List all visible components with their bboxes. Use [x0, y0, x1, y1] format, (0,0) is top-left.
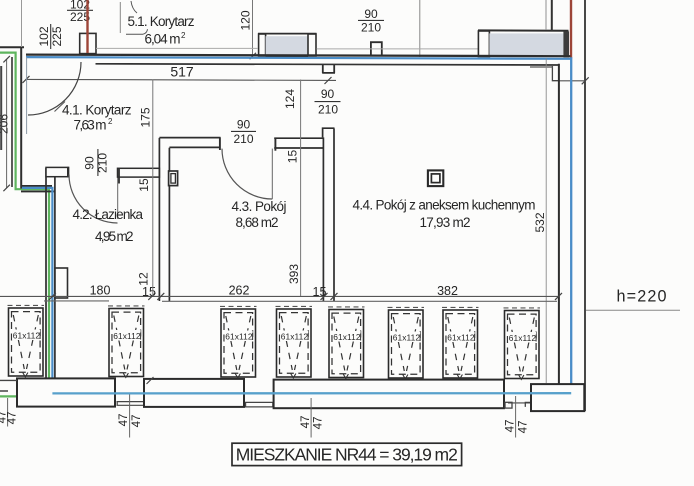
- svg-text:90: 90: [83, 156, 97, 170]
- svg-text:180: 180: [90, 284, 111, 298]
- svg-text:210: 210: [96, 153, 110, 173]
- svg-text:4.4. Pokój z aneksem kuchennym: 4.4. Pokój z aneksem kuchennym: [353, 198, 536, 213]
- svg-text:47: 47: [300, 416, 312, 429]
- svg-text:6,04 m: 6,04 m: [145, 32, 181, 47]
- svg-text:5.1. Korytarz: 5.1. Korytarz: [128, 14, 195, 29]
- svg-text:15: 15: [142, 285, 156, 299]
- svg-text:4.2. Łazienka: 4.2. Łazienka: [73, 207, 144, 222]
- svg-text:7,63 m: 7,63 m: [74, 118, 107, 133]
- svg-text:90: 90: [237, 118, 251, 132]
- svg-text:12: 12: [137, 272, 151, 286]
- svg-text:47: 47: [518, 421, 530, 434]
- svg-text:90: 90: [321, 87, 335, 101]
- svg-text:47: 47: [131, 415, 143, 428]
- svg-text:517: 517: [170, 64, 194, 80]
- svg-text:382: 382: [437, 284, 458, 298]
- svg-text:90: 90: [364, 7, 378, 21]
- svg-text:8,68 m2: 8,68 m2: [236, 215, 279, 230]
- svg-text:210: 210: [233, 132, 253, 146]
- svg-text:532: 532: [533, 212, 547, 232]
- svg-text:124: 124: [283, 89, 297, 109]
- svg-text:4.3. Pokój: 4.3. Pokój: [232, 199, 287, 214]
- svg-text:120: 120: [239, 10, 253, 30]
- svg-text:47: 47: [313, 417, 325, 430]
- svg-text:262: 262: [229, 284, 250, 298]
- svg-text:47: 47: [118, 414, 130, 427]
- svg-text:47: 47: [7, 412, 19, 425]
- svg-text:2: 2: [108, 117, 113, 126]
- svg-text:MIESZKANIE NR44 = 39,19 m2: MIESZKANIE NR44 = 39,19 m2: [236, 445, 458, 465]
- svg-text:225: 225: [50, 26, 64, 46]
- svg-text:210: 210: [318, 103, 338, 117]
- svg-text:15: 15: [137, 178, 151, 192]
- svg-text:175: 175: [139, 107, 153, 127]
- svg-text:17,93 m2: 17,93 m2: [420, 215, 471, 230]
- svg-text:210: 210: [361, 21, 381, 35]
- svg-text:h=220: h=220: [617, 288, 667, 306]
- svg-text:102: 102: [37, 26, 51, 46]
- svg-text:2: 2: [181, 31, 186, 40]
- svg-text:4.1. Korytarz: 4.1. Korytarz: [62, 103, 132, 118]
- svg-text:15: 15: [313, 285, 327, 299]
- svg-text:4,95 m2: 4,95 m2: [95, 229, 134, 244]
- svg-text:47: 47: [505, 420, 517, 433]
- svg-text:393: 393: [287, 264, 301, 284]
- svg-text:15: 15: [286, 150, 300, 164]
